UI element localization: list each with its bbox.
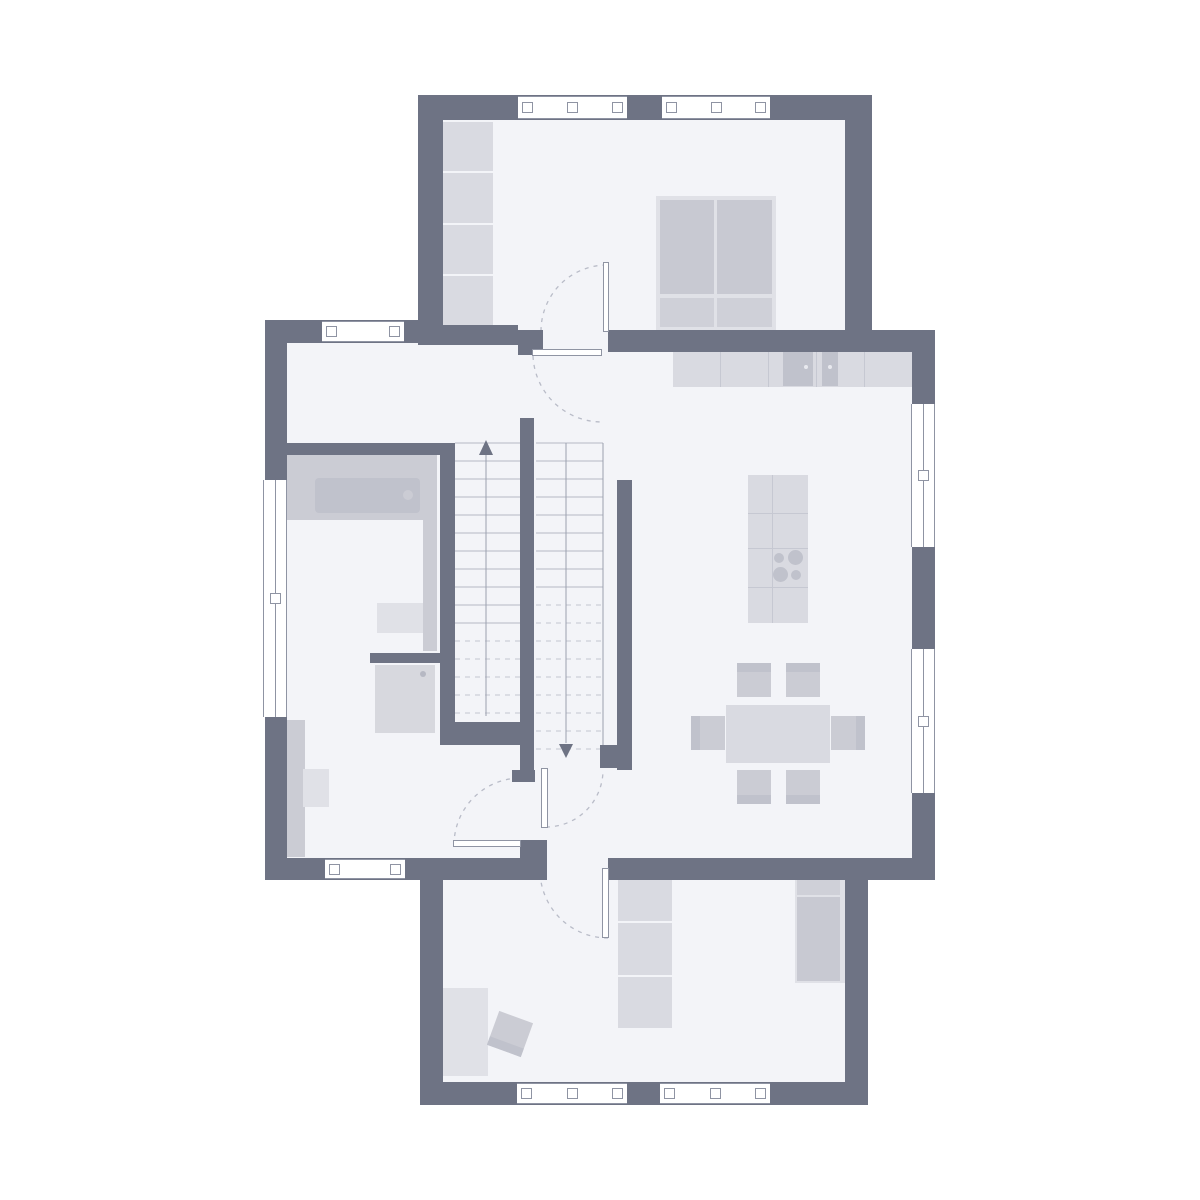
door-swing-stair-hall xyxy=(546,770,603,827)
wall-bath-top xyxy=(287,443,455,455)
window-pane xyxy=(612,102,623,113)
window-pane xyxy=(326,326,337,337)
wall-bottomroom-left xyxy=(420,880,443,1105)
window-kitchen-right xyxy=(911,404,935,547)
door-leaf-stair-hall xyxy=(541,768,548,828)
wall-bedroom-right xyxy=(845,95,872,352)
window-pane xyxy=(521,1088,532,1099)
door-swing-bottom-room xyxy=(540,870,608,938)
wall-door-stub xyxy=(520,840,547,860)
window-bedroom-1 xyxy=(518,96,627,119)
window-pane xyxy=(918,716,929,727)
stairs-down-arrow-icon xyxy=(559,744,573,758)
window-dining-right xyxy=(911,649,935,793)
door-leaf-landing xyxy=(532,349,602,356)
wall-stair-right xyxy=(617,480,632,770)
stairs-and-door-swings xyxy=(0,0,1200,1200)
window-bath-left xyxy=(263,480,287,717)
window-bedroom-2 xyxy=(662,96,770,119)
door-swing-living xyxy=(454,778,521,845)
window-bottomroom-1 xyxy=(517,1083,627,1104)
wall-bath-stub xyxy=(370,653,442,663)
door-swing-bedroom xyxy=(541,265,607,331)
window-pane xyxy=(329,864,340,875)
wall-bedroom-left xyxy=(418,95,443,345)
window-pane xyxy=(710,1088,721,1099)
door-swing-landing xyxy=(533,356,602,422)
wall-bottomroom-right xyxy=(845,880,868,1105)
wall-stair-middle xyxy=(520,418,534,770)
window-pane xyxy=(664,1088,675,1099)
window-pane xyxy=(755,102,766,113)
floor-plan xyxy=(0,0,1200,1200)
wall-bedroom-top xyxy=(418,95,872,120)
stair-treads-right-solid xyxy=(536,443,603,587)
stair-treads-left-solid xyxy=(455,443,520,623)
window-pane xyxy=(755,1088,766,1099)
window-pane xyxy=(522,102,533,113)
stair-treads-right-dashed xyxy=(536,605,603,749)
window-pane xyxy=(666,102,677,113)
wall-stair-middle-cap xyxy=(512,770,535,782)
window-bottomroom-2 xyxy=(660,1083,770,1104)
window-pane xyxy=(711,102,722,113)
wall-stair-left xyxy=(440,443,455,745)
stair-treads-left-dashed xyxy=(455,641,520,713)
window-entry-top xyxy=(322,321,404,342)
window-pane xyxy=(567,102,578,113)
window-living-bottom xyxy=(325,859,405,879)
window-pane xyxy=(389,326,400,337)
wall-bedroom-bottom-right xyxy=(608,330,935,352)
wall-stair-right-foot xyxy=(600,745,632,768)
door-leaf-living xyxy=(453,840,521,847)
window-pane xyxy=(390,864,401,875)
wall-bottomroom-bottom xyxy=(420,1082,868,1105)
window-pane xyxy=(270,593,281,604)
window-pane xyxy=(567,1088,578,1099)
door-leaf-bottom-room xyxy=(602,868,609,938)
window-pane xyxy=(612,1088,623,1099)
wall-main-bottom-right xyxy=(608,858,935,880)
stairs-up-arrow-icon xyxy=(479,440,493,455)
window-pane xyxy=(918,470,929,481)
door-leaf-bedroom xyxy=(603,262,609,332)
wall-main-bottom-left xyxy=(265,858,547,880)
